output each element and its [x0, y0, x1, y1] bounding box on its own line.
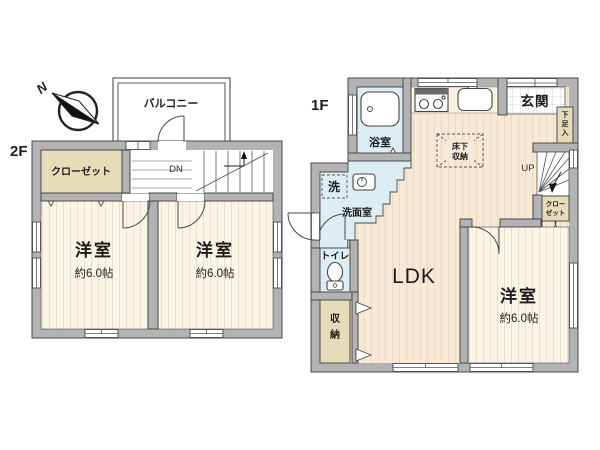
floor-plan-page: バルコニー クローゼット DN: [0, 0, 600, 450]
balcony: バルコニー: [113, 78, 230, 142]
wall-bedroom1-top-left: [460, 219, 472, 227]
wall-toilet-top-left: [311, 240, 320, 248]
floor2-label: 2F: [10, 143, 28, 160]
closet1-label-2: ゼット: [546, 208, 566, 217]
wall-hall-left: [41, 193, 122, 201]
bedroom2-left-label: 洋室: [75, 240, 113, 260]
ldk-label: LDK: [392, 265, 436, 288]
bedroom1-label: 洋室: [500, 286, 538, 306]
stairs-dn-label: DN: [169, 164, 183, 175]
floor-plan-drawing: バルコニー クローゼット DN: [0, 0, 600, 450]
wall-bedroom1-top-right: [500, 219, 541, 227]
bedroom2-left-size: 約6.0帖: [75, 266, 114, 280]
bedroom2-right-size: 約6.0帖: [196, 266, 235, 280]
compass-icon: N: [33, 79, 99, 130]
doorway-right: [177, 194, 204, 201]
toilet-doorway: [320, 240, 347, 248]
kitchen-counter: [411, 86, 498, 114]
floor1-label: 1F: [311, 97, 329, 114]
wall-bedroom1-left: [460, 227, 468, 363]
shoe-label-1: 下: [562, 111, 569, 119]
entrance: 玄関: [507, 87, 565, 114]
wall-hall-right: [204, 193, 273, 201]
bathroom-label: 浴室: [369, 135, 391, 149]
bathroom: 浴室: [357, 87, 403, 159]
underfloor-label-1: 床下: [452, 141, 468, 151]
bedroom2-right-label: 洋室: [196, 240, 234, 260]
toilet-icon: [327, 263, 343, 291]
compass-north-label: N: [33, 79, 50, 97]
wall-room-divider: [148, 201, 158, 329]
wall-toilet-right: [350, 240, 358, 292]
wall-hall-mid: [149, 193, 177, 201]
laundry-label: 洗: [328, 179, 340, 194]
bathtub-icon: [361, 92, 399, 126]
shoe-label-2: 足: [562, 120, 570, 128]
storage-label-2: 納: [330, 328, 340, 341]
wall-bath-bottom: [348, 153, 411, 161]
balcony-label: バルコニー: [144, 97, 199, 110]
shoe-label-3: 入: [561, 129, 569, 137]
doorway-left: [122, 194, 149, 201]
storage-label-1: 収: [330, 313, 341, 325]
stairs-up-label: UP: [521, 163, 534, 174]
entrance-label: 玄関: [521, 93, 550, 109]
stove-icon: [415, 89, 448, 112]
bedroom1-size: 約6.0帖: [500, 311, 539, 325]
washbasin-icon: [353, 174, 375, 190]
washroom-exterior-door: [288, 213, 320, 240]
closet1-label-1: クロー: [546, 199, 566, 208]
floor2-plan: バルコニー クローゼット DN: [10, 78, 282, 338]
toilet-room: トイレ: [320, 248, 350, 292]
sink-icon: [458, 86, 492, 111]
closet2-label: クローゼット: [51, 165, 111, 178]
closet1-floor: [542, 196, 569, 221]
wall-bath-right: [403, 78, 411, 161]
closet2-wall: [122, 150, 130, 193]
wall-entrance-left: [498, 78, 507, 115]
toilet-label: トイレ: [321, 251, 350, 262]
bedroom2-right-floor: [158, 201, 273, 329]
underfloor-label-2: 収納: [452, 151, 468, 161]
front-door: [507, 79, 557, 87]
floor1-plan: 浴室 洗 洗面室 トイレ: [288, 78, 578, 372]
bedroom2-left-floor: [41, 201, 148, 329]
washroom-label: 洗面室: [342, 206, 372, 219]
storage-room: 収 納: [320, 300, 350, 363]
wall-toilet-bottom: [311, 292, 358, 300]
